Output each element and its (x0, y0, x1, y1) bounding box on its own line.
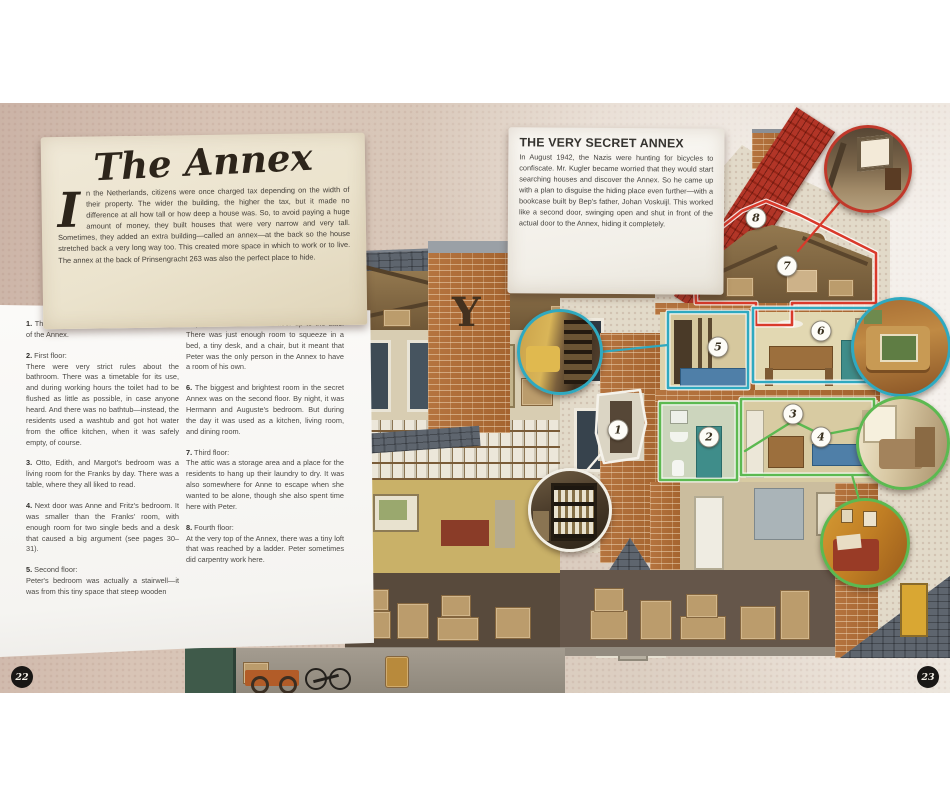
page-title: The Annex (56, 136, 350, 189)
warehouse-right (560, 570, 835, 656)
intro-card: The Annex In the Netherlands, citizens w… (41, 133, 368, 330)
attic-photo (824, 125, 912, 213)
sitting-room-photo (856, 396, 950, 490)
note-5: 5. Second floor:Peter's bedroom was actu… (26, 565, 179, 598)
peters-room-photo (517, 309, 603, 395)
note-7: 7. Third floor:The attic was a storage a… (186, 448, 344, 513)
marker-7-attic: 7 (777, 256, 798, 277)
right-lit-window (900, 583, 928, 637)
game-table-photo (851, 297, 950, 397)
marker-3-franks-room: 3 (783, 404, 804, 425)
secret-annex-body: In August 1942, the Nazis were hunting f… (519, 152, 714, 230)
annes-room-photo (820, 498, 910, 588)
note-5-continued: steps led from the second floor up to th… (186, 319, 344, 373)
handcart (245, 670, 299, 686)
marker-2-bathroom: 2 (699, 427, 720, 448)
two-page-spread: Y (0, 103, 950, 693)
marker-4-annes-room: 4 (811, 427, 832, 448)
annotations-column-1: 1. The swinging bookcase leading to the … (26, 319, 179, 608)
page-number-left: 22 (11, 666, 33, 688)
drop-cap: I (57, 192, 80, 231)
street-scene (185, 648, 565, 693)
front-house-warehouse (345, 573, 560, 655)
front-house-office (345, 480, 560, 573)
front-house-brick-pier: Y (428, 253, 510, 433)
note-3: 3. Otto, Edith, and Margot's bedroom was… (26, 458, 179, 491)
note-2: 2. First floor:There were very strict ru… (26, 351, 179, 449)
annex-first-floor (658, 400, 878, 482)
swinging-bookcase-photo (528, 468, 612, 552)
bicycles (305, 660, 365, 690)
secret-annex-title: THE VERY SECRET ANNEX (519, 135, 713, 150)
note-4: 4. Next door was Anne and Fritz's bedroo… (26, 501, 179, 555)
annex-second-floor (660, 312, 878, 392)
note-8: 8. Fourth floor:At the very top of the A… (186, 523, 344, 566)
annotations-column-2: steps led from the second floor up to th… (186, 319, 344, 576)
marker-1-bookcase: 1 (608, 420, 629, 441)
annotation-text-panel: 1. The swinging bookcase leading to the … (0, 305, 374, 657)
secret-annex-box: THE VERY SECRET ANNEX In August 1942, th… (507, 127, 724, 295)
intro-paragraph: In the Netherlands, citizens were once c… (57, 184, 350, 266)
page-number-right: 23 (917, 666, 939, 688)
book-spread-screenshot: { "page": { "left_number": "22", "right_… (0, 0, 950, 800)
note-6: 6. The biggest and brightest room in the… (186, 383, 344, 437)
marker-6-kitchen: 6 (811, 321, 832, 342)
marker-8-loft: 8 (746, 208, 767, 229)
marker-5-peters-room: 5 (708, 337, 729, 358)
wall-anchor-y: Y (452, 293, 486, 337)
